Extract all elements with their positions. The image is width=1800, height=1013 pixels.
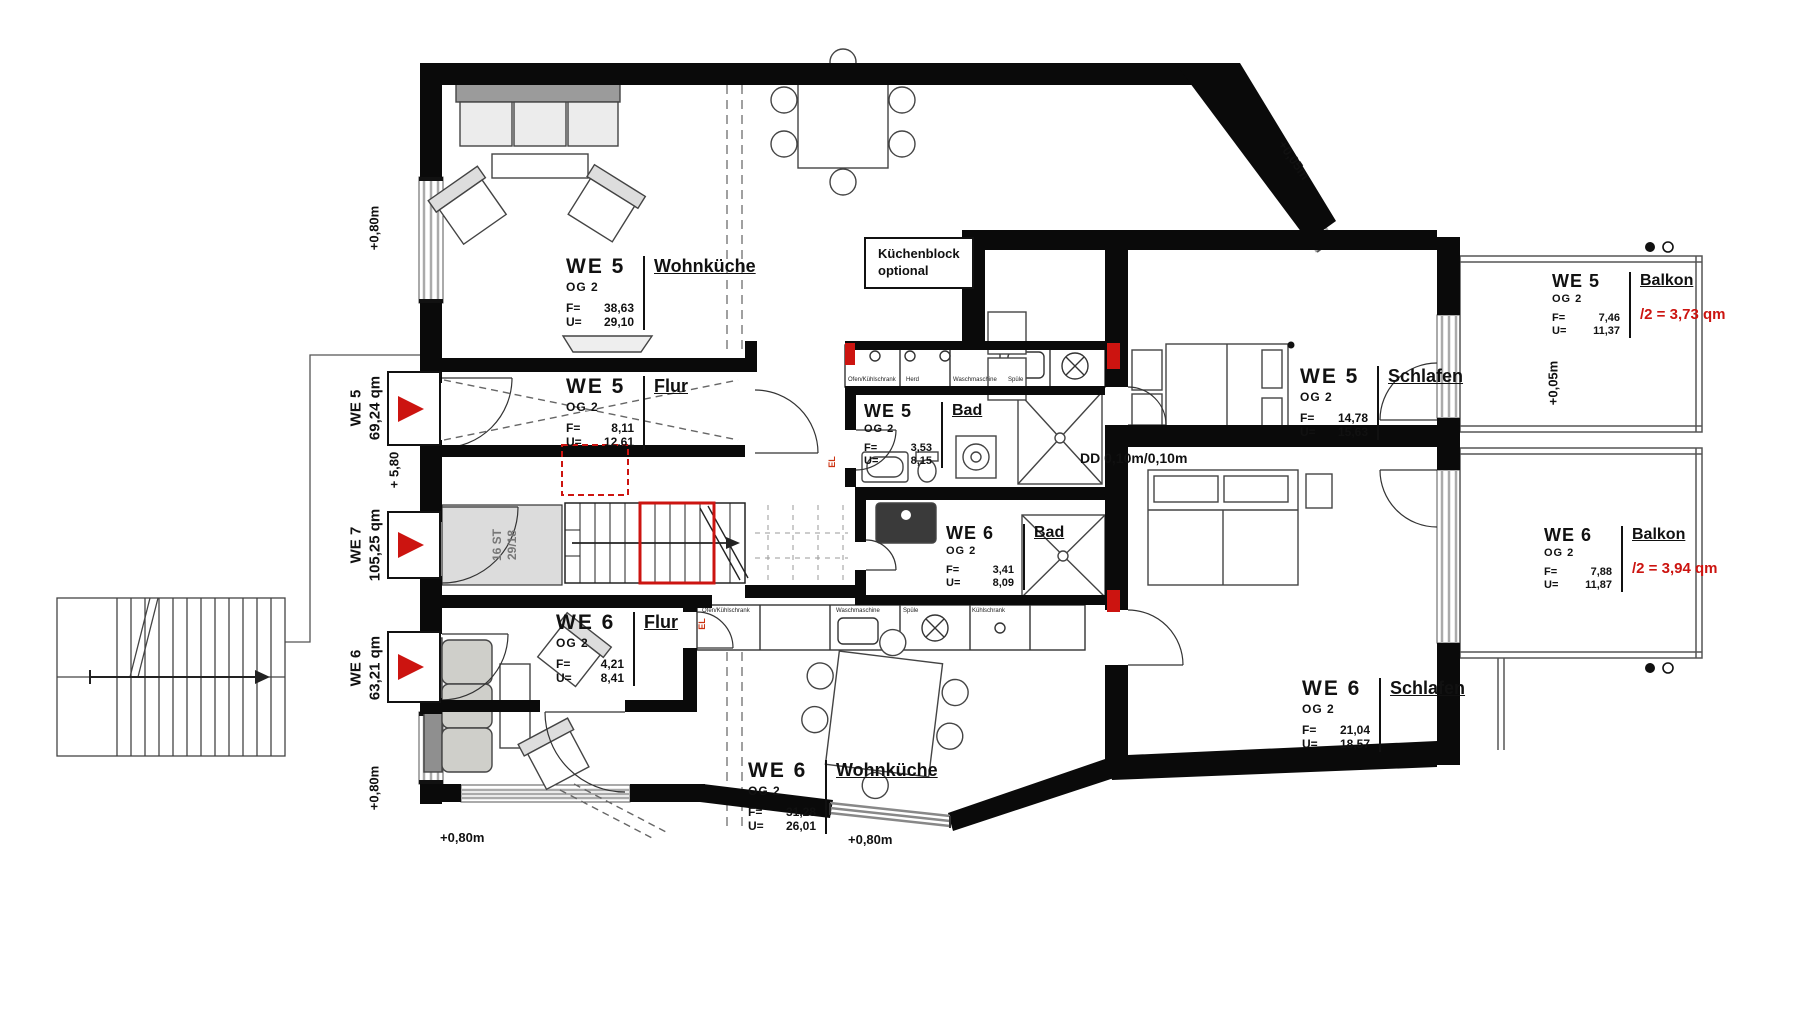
stair-count-label: 16 ST 29/18 (490, 529, 520, 561)
indoor-staircase (442, 503, 748, 585)
room-label-we6-balkon: WE 6 OG 2 F=7,88 U=11,87 Balkon /2 = 3,9… (1544, 526, 1717, 592)
level-label-plus-580: + 5,80 (387, 452, 402, 489)
label-divider (643, 256, 645, 330)
balcony-half-area: /2 = 3,73 qm (1640, 306, 1725, 323)
appliance-label: Spüle (1008, 377, 1023, 383)
window-balcony-we6 (1437, 470, 1460, 643)
appliance-label: Spüle (903, 608, 918, 614)
outdoor-staircase (57, 598, 285, 756)
room-unit: WE 5 (566, 256, 634, 277)
room-label-we5-balkon: WE 5 OG 2 F=7,46 U=11,37 Balkon /2 = 3,7… (1552, 272, 1725, 338)
entry-niches (388, 372, 440, 702)
dd-annotation: DD 0,10m/0,10m (1080, 450, 1187, 466)
label-divider (1621, 526, 1623, 592)
wall-junction-marker (1107, 590, 1120, 612)
elevation-bottom-left-vertical: +0,80m (367, 766, 382, 810)
wall-junction-marker (1107, 343, 1120, 369)
room-label-we5-wohnkueche: WE 5 OG 2 F=38,63 U=29,10 Wohnküche (566, 256, 756, 330)
bedroom-we6 (1148, 470, 1332, 585)
wall-junction-marker (845, 343, 855, 365)
elevation-balcony-right: +0,05m (1546, 361, 1561, 405)
elevation-top-left: +0,80m (367, 206, 382, 250)
dining-table (825, 651, 942, 777)
el-label-we6: EL (697, 618, 707, 630)
label-divider (1379, 678, 1381, 752)
room-label-we6-flur: WE 6 OG 2 F=4,21 U=8,41 Flur (556, 612, 678, 686)
balcony-we6 (1460, 448, 1702, 750)
appliance-label: Ofen/Kühlschrank (702, 608, 750, 614)
el-label-we5: EL (827, 456, 837, 468)
label-divider (643, 376, 645, 450)
unit-label-we6: WE 6 63,21 qm (347, 636, 385, 700)
label-divider (1023, 524, 1025, 590)
room-label-we6-schlafen: WE 6 OG 2 F=21,04 U=18,57 Schlafen (1302, 678, 1465, 752)
label-divider (1377, 366, 1379, 440)
room-label-we5-flur: WE 5 OG 2 F=8,11 U=12,61 Flur (566, 376, 688, 450)
floor-plan: WE 5 OG 2 F=38,63 U=29,10 Wohnküche WE 5… (0, 0, 1800, 1013)
balcony-half-area: /2 = 3,94 qm (1632, 560, 1717, 577)
elevation-bottom-left: +0,80m (440, 830, 484, 845)
room-label-we5-schlafen: WE 5 OG 2 F=14,78 U=15,63 Schlafen (1300, 366, 1463, 440)
label-divider (941, 402, 943, 468)
appliance-label: Herd (906, 377, 919, 383)
shower (1018, 392, 1102, 484)
room-label-we6-wohnkueche: WE 6 OG 2 F=31,28 U=26,01 Wohnküche (748, 760, 938, 834)
dining-table (798, 76, 888, 168)
floor-plan-drawing (0, 0, 1800, 1013)
room-label-we5-bad: WE 5 OG 2 F=3,53 U=8,15 Bad (864, 402, 982, 468)
appliance-label: Waschmaschine (953, 377, 997, 383)
appliance-label: Ofen/Kühlschrank (848, 377, 896, 383)
kuechenblock-note: Küchenblock optional (864, 237, 974, 289)
nightstand (1132, 350, 1162, 390)
sofa (456, 84, 620, 146)
elevation-bottom-middle: +0,80m (848, 832, 892, 847)
unit-label-we7: WE 7 105,25 qm (347, 509, 385, 582)
sideboard (563, 336, 652, 352)
room-floor: OG 2 (566, 280, 634, 294)
coffee-table (492, 154, 588, 178)
room-label-we6-bad: WE 6 OG 2 F=3,41 U=8,09 Bad (946, 524, 1064, 590)
double-bed (1148, 470, 1298, 585)
appliance-label: Kühlschrank (972, 608, 1005, 614)
label-divider (825, 760, 827, 834)
unit-label-we5: WE 5 69,24 qm (347, 376, 385, 440)
label-divider (633, 612, 635, 686)
room-name: Wohnküche (654, 256, 756, 277)
vanity (876, 503, 936, 543)
nightstand (1306, 474, 1332, 508)
appliance-label: Waschmaschine (836, 608, 880, 614)
label-divider (1629, 272, 1631, 338)
